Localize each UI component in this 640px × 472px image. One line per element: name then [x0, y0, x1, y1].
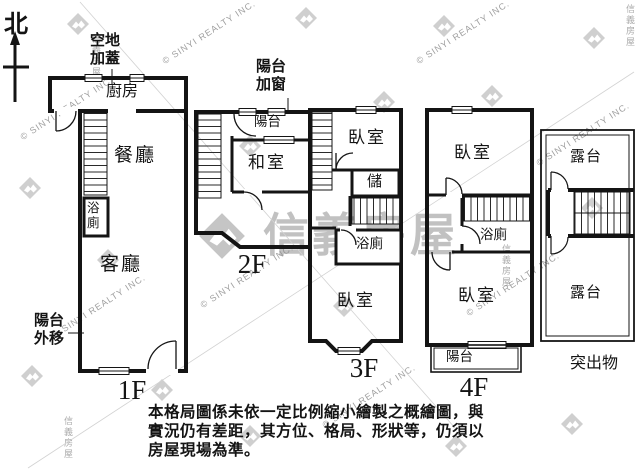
door-arc: [336, 153, 353, 170]
room-label-bathroom-1f: 浴廁: [87, 201, 102, 231]
room-label-storage-3f: 儲: [367, 174, 382, 192]
floor-label-2f: 2F: [228, 249, 276, 281]
room-label-bathroom-4f: 浴廁: [480, 227, 507, 243]
door-arc: [148, 341, 176, 369]
door-arc: [234, 114, 256, 136]
room-label-bathroom-3f: 浴廁: [356, 236, 383, 252]
room-label-kitchen-1f: 廚房: [106, 83, 138, 102]
stairs-2f: [198, 114, 221, 198]
north-arrow: [3, 31, 29, 102]
balcony-walls-4f: [431, 345, 521, 372]
window: [99, 368, 129, 375]
room-label-balcony-4f: 陽台: [446, 349, 473, 365]
room-label-dining-1f: 餐廳: [114, 145, 156, 167]
north-label: 北: [4, 11, 28, 39]
disclaimer-text: 本格局圖係未依一定比例縮小繪製之概繪圖，與 實況仍有差距，其方位、格局、形狀等，…: [148, 403, 496, 461]
annotation-vacant-land-addition: 空地 加蓋: [90, 33, 120, 68]
stairs-4f: [464, 197, 530, 221]
stairs-1f: [84, 113, 107, 195]
floor-label-4f: 4F: [450, 372, 498, 404]
annotation-balcony-added-window: 陽台 加窗: [256, 59, 286, 94]
room-label-terrace-bottom: 露台: [570, 285, 602, 303]
floor-label-roof: 突出物: [556, 355, 632, 374]
room-label-bedroom-bottom-3f: 臥室: [337, 291, 375, 311]
room-label-tatami-2f: 和室: [248, 153, 286, 173]
room-label-balcony-2f: 陽台: [254, 114, 281, 130]
room-label-bedroom-top-4f: 臥室: [454, 143, 492, 163]
floor-label-3f: 3F: [340, 353, 388, 385]
room-label-terrace-top: 露台: [570, 149, 602, 167]
stairs-3f-left: [312, 112, 332, 190]
annotation-balcony-extended: 陽台 外移: [34, 313, 64, 348]
room-label-bedroom-top-3f: 臥室: [348, 128, 386, 148]
floorplan-1f: [50, 69, 186, 375]
room-label-living-1f: 客廳: [100, 254, 142, 276]
stairs-3f-center: [352, 198, 401, 224]
room-label-bedroom-bottom-4f: 臥室: [458, 286, 496, 306]
floorplan-image: © SINYI REALTY INC. © SINYI REALTY INC. …: [0, 0, 640, 472]
door-arc: [432, 252, 450, 270]
floorplan-linework: [0, 0, 640, 472]
